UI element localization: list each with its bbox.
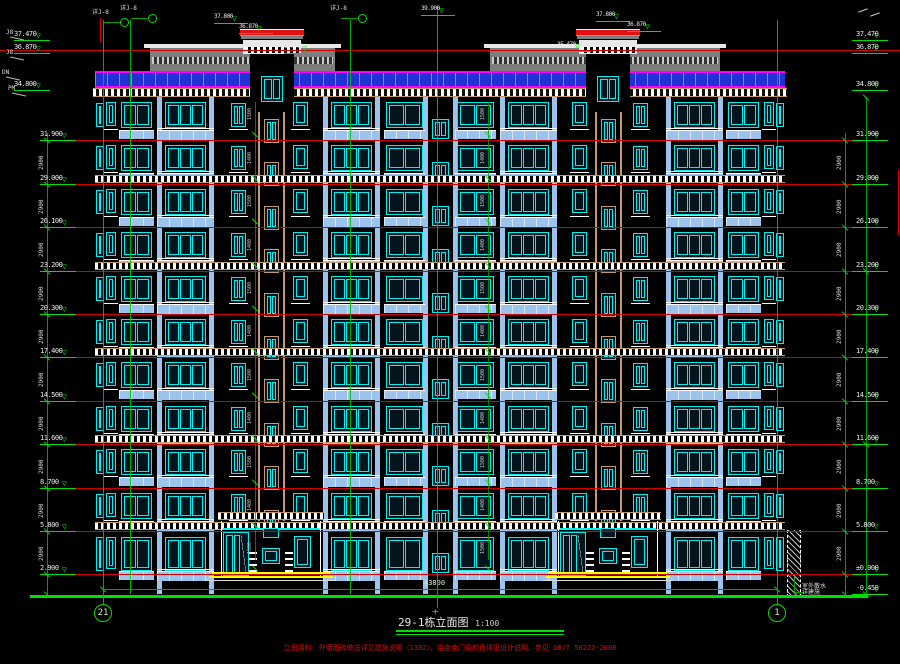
inner-dim-value: 1500 [248,369,253,381]
window-sill [666,388,723,389]
window-pane [239,193,243,211]
balcony-railing-band [119,390,154,399]
window-pane [180,365,191,385]
window-pane [137,365,149,385]
window-pane [744,105,756,125]
window-triple [331,493,372,519]
window-pane [389,409,404,429]
inner-dim-value: 1500 [248,195,253,207]
window-pane [575,409,584,427]
window-pane [604,122,608,140]
window-pane [389,279,404,299]
window-pane [137,105,149,125]
window-small [231,103,246,127]
porch-column [320,521,321,577]
elevation-marker-triangle: ▽ [62,306,67,314]
window-sill [104,520,118,521]
elevation-value: 37.470 [856,31,878,38]
entrance-lamp [600,528,616,538]
window-sill [323,345,380,346]
window-pane [346,279,357,299]
balcony-railing-band [157,130,214,140]
window-pane [334,192,345,212]
window-narrow [106,493,116,517]
inner-dim-chain [255,102,256,560]
elevation-value: 39.900 [421,6,440,12]
floor-level-line [55,314,852,315]
window-double [728,406,759,432]
window-sill [570,259,589,260]
title-underline-thick [396,630,564,632]
window-sill [229,129,248,130]
corner-tick [870,12,880,16]
window-small [633,277,648,301]
callout-label: 详J-8 [330,6,347,12]
stair-window [601,466,616,490]
inner-dim-value: 1500 [248,282,253,294]
elevation-marker-line [852,401,888,402]
window-pane [731,540,743,568]
window-narrow [293,145,308,169]
window-pane [272,469,276,487]
window-pane [234,193,238,211]
inner-dim-chain [488,102,489,560]
margin-label: DN [2,70,9,76]
window-triple [165,232,206,258]
window-pane [636,410,640,428]
window-sill [762,129,776,130]
window-narrow [572,189,587,213]
window-pane [265,551,277,561]
elevation-marker-line [852,594,888,595]
window-small [231,407,246,431]
window-double [728,232,759,258]
window-pane [604,382,608,400]
window-small [633,320,648,344]
window-pane [405,322,420,342]
center-stair-window [432,379,449,399]
window-sill [570,303,589,304]
window-pane [180,279,191,299]
stair-rail [586,552,594,574]
window-pane [731,452,743,472]
elevation-marker-line [852,314,888,315]
window-pane [535,365,546,385]
construction-grid-line [437,6,438,608]
window-narrow [293,406,308,430]
elevation-marker-line [852,40,888,41]
inner-dim-value: 1400 [248,325,253,337]
elevation-marker-triangle: ▽ [62,393,67,401]
window-sill [157,432,214,433]
window-pane [272,209,276,227]
window-pane [767,322,771,340]
title-underline-thin [396,634,564,635]
window-double [121,189,152,215]
window-pane [389,192,404,212]
window-narrow [572,232,587,256]
entrance-step [546,576,670,578]
window-pane [180,409,191,429]
window-sill [500,215,557,216]
entrance-step [209,576,333,578]
window-triple [165,319,206,345]
dim-value: 2900 [39,156,45,170]
window-pane [701,148,712,168]
entrance-side-panel [599,548,617,564]
window-pane [168,322,179,342]
grid-bubble-1-label: 1 [774,608,779,618]
window-pane [239,366,243,384]
window-pane [168,279,179,299]
window-pane [701,452,712,472]
window-pane [677,540,688,568]
window-pane [334,496,345,516]
window-sill [229,520,248,521]
window-sill [291,216,310,217]
window-pane [180,148,191,168]
window-narrow [572,449,587,473]
window-pane [744,322,756,342]
inner-dim-value: 1500 [248,108,253,120]
window-narrow [764,145,774,169]
window-small [633,233,648,257]
window-pane [358,409,369,429]
window-double [728,493,759,519]
window-pane [358,365,369,385]
window-double [728,102,759,128]
window-sill [323,388,380,389]
grid-bubble-1: 1 [768,604,786,622]
grid-bubble-21-label: 21 [98,608,109,618]
red-grid-tick [898,170,899,235]
window-triple [331,537,372,571]
balcony-glass-strip [375,531,380,594]
floor-level-line [55,140,852,141]
window-sill [291,389,310,390]
window-pane [609,469,613,487]
floor-level-line [55,488,852,489]
window-pane [575,365,584,383]
window-narrow [106,319,116,343]
window-pane [511,322,522,342]
window-sill [157,302,214,303]
window-pane [109,409,113,427]
window-double [386,145,423,171]
window-triple [674,362,715,388]
window-triple [674,449,715,475]
window-double [386,493,423,519]
window-pane [779,323,781,341]
window-pane [389,235,404,255]
window-sill [291,476,310,477]
window-pane [239,280,243,298]
window-pane [137,322,149,342]
dim-value: 2900 [837,199,843,213]
elevation-value: 14.500 [856,392,878,399]
window-pane [267,122,271,140]
window-pane [192,279,203,299]
window-sill [666,171,723,172]
window-pane [99,410,101,428]
elevation-marker-line [284,53,318,54]
balcony-railing-band [384,304,425,313]
window-pane [460,235,475,255]
balcony-railing-band [119,571,154,580]
window-pane [677,322,688,342]
window-sill [631,172,650,173]
window-pane [405,235,420,255]
window-sill [291,129,310,130]
window-pane [767,409,771,427]
window-pane [689,322,700,342]
dim-value: 2900 [39,373,45,387]
window-pane [744,496,756,516]
elevation-marker-triangle: ▽ [36,45,41,53]
window-double [386,319,423,345]
elevation-value: 35.470 [557,42,576,48]
elevation-marker-triangle: ▽ [62,132,67,140]
window-pane [744,365,756,385]
window-pane [641,236,645,254]
window-pane [334,452,345,472]
window-pane [389,365,404,385]
window-pane [731,496,743,516]
window-sill [570,433,589,434]
window-pane [239,236,243,254]
window-pane [405,105,420,125]
elevation-marker-triangle: ▽ [62,263,67,271]
window-triple [165,145,206,171]
window-pane [744,452,756,472]
window-pane [192,322,203,342]
window-pane [137,192,149,212]
dim-value: 2900 [39,243,45,257]
hatch-leader [794,577,795,593]
center-stair-window [432,119,449,139]
window-pane [636,280,640,298]
window-narrow [106,362,116,386]
construction-grid-line [103,20,104,604]
window-sill [104,129,118,130]
window-pane [731,235,743,255]
window-pane [405,279,420,299]
window-pane [511,452,522,472]
window-pane [511,279,522,299]
window-pane [511,105,522,125]
inner-dim-value: 1400 [248,239,253,251]
window-pane [296,192,305,210]
window-pane [523,540,534,568]
window-pane [609,79,617,99]
elevation-marker-line [852,227,888,228]
window-pane [677,148,688,168]
window-pane [609,209,613,227]
window-pane [239,106,243,124]
window-double [386,189,423,215]
window-double [121,145,152,171]
window-narrow [764,362,774,386]
dentil-band [95,175,785,183]
floor-level-line [55,357,852,358]
window-pane [109,452,113,470]
window-pane [358,540,369,568]
window-pane [99,236,101,254]
window-sill [570,216,589,217]
window-pane [405,540,420,568]
window-pane [109,322,113,340]
window-pane [460,148,475,168]
window-pane [535,105,546,125]
window-pane [234,323,238,341]
elevation-marker-line [14,53,50,54]
window-sill [157,258,214,259]
window-pane [523,279,534,299]
window-double [121,493,152,519]
window-pane [109,148,113,166]
window-pane [767,235,771,253]
balcony-railing-band [666,217,723,227]
window-pane [689,235,700,255]
window-sill [229,476,248,477]
window-sill [570,346,589,347]
material-note: 立面用料：外墙面砖做法详见建施说明（1302），铝合金门窗颜色详见设计说明，参见… [284,645,617,652]
elevation-value: 20.300 [40,305,62,312]
window-sill [631,476,650,477]
window-pane [701,365,712,385]
window-pane [267,469,271,487]
elevation-marker-triangle: ▽ [62,349,67,357]
window-narrow [106,276,116,300]
window-pane [689,279,700,299]
stair-window [601,379,616,403]
window-sill [570,520,589,521]
window-triple [165,362,206,388]
dim-value: 2900 [39,329,45,343]
window-pane [535,235,546,255]
window-pane [641,323,645,341]
window-triple [165,537,206,571]
elevation-marker-line [852,531,888,532]
window-pane [523,148,534,168]
window-pane [571,535,578,573]
window-sill [500,475,557,476]
tower-cap [577,36,639,39]
window-pane [744,192,756,212]
window-pane [744,148,756,168]
balcony-railing-band [119,130,154,139]
window-pane [563,535,570,573]
window-pane [441,556,446,570]
floor-level-line [55,184,852,185]
elevation-value: 34.800 [856,81,878,88]
window-triple [165,449,206,475]
inner-dim-value: 1400 [481,239,486,251]
balcony-glass-strip [666,531,671,594]
balcony-railing-band [500,477,557,487]
window-pane [192,105,203,125]
margin-label: J8 [6,50,13,56]
main-cornice [93,88,787,97]
window-pane [296,409,305,427]
balcony-railing-band [323,130,380,140]
elevation-value: 29.000 [40,175,62,182]
window-triple [331,406,372,432]
floor-level-line [55,271,852,272]
stair-rail [285,552,293,574]
elevation-marker-line [40,444,76,445]
dim-value: 2900 [39,199,45,213]
window-pane [405,452,420,472]
window-pane [636,453,640,471]
window-small [633,407,648,431]
drawing-scale: 1:100 [475,619,499,628]
elevation-value: 36.870 [239,24,258,30]
window-double [386,232,423,258]
window-pane [180,322,191,342]
window-pane [234,280,238,298]
window-double [386,406,423,432]
window-pane [168,452,179,472]
window-pane [523,452,534,472]
stair-window [264,379,279,403]
window-pane [779,540,781,568]
elevation-value: 37.800 [596,12,615,18]
window-pane [744,279,756,299]
window-triple [508,189,549,215]
window-pane [405,192,420,212]
window-pane [744,409,756,429]
window-pane [634,539,645,565]
window-pane [180,452,191,472]
window-pane [272,296,276,314]
window-sill [291,520,310,521]
window-pane [99,453,101,471]
window-narrow [764,232,774,256]
window-triple [674,537,715,571]
window-pane [689,540,700,568]
window-pane [460,365,475,385]
window-sill [500,388,557,389]
window-pane [535,409,546,429]
elevation-marker-line [627,31,661,32]
window-sill [229,259,248,260]
window-small [633,450,648,474]
window-pane [109,105,113,123]
elevation-marker-line [40,314,76,315]
window-sill [762,520,776,521]
elevation-marker-triangle: ▽ [62,219,67,227]
window-sill [229,433,248,434]
window-pane [441,382,446,396]
window-pane [137,452,149,472]
elevation-marker-line [40,140,76,141]
window-small [231,190,246,214]
elevation-marker-line [852,140,888,141]
window-sill [323,171,380,172]
window-small [231,233,246,257]
window-pane [346,235,357,255]
window-pane [575,148,584,166]
window-pane [731,365,743,385]
center-stair-window [432,553,449,573]
elevation-marker-line [40,531,76,532]
window-pane [334,279,345,299]
window-sill [570,476,589,477]
window-pane [168,105,179,125]
window-pane [535,322,546,342]
balcony-glass-strip [500,531,505,594]
